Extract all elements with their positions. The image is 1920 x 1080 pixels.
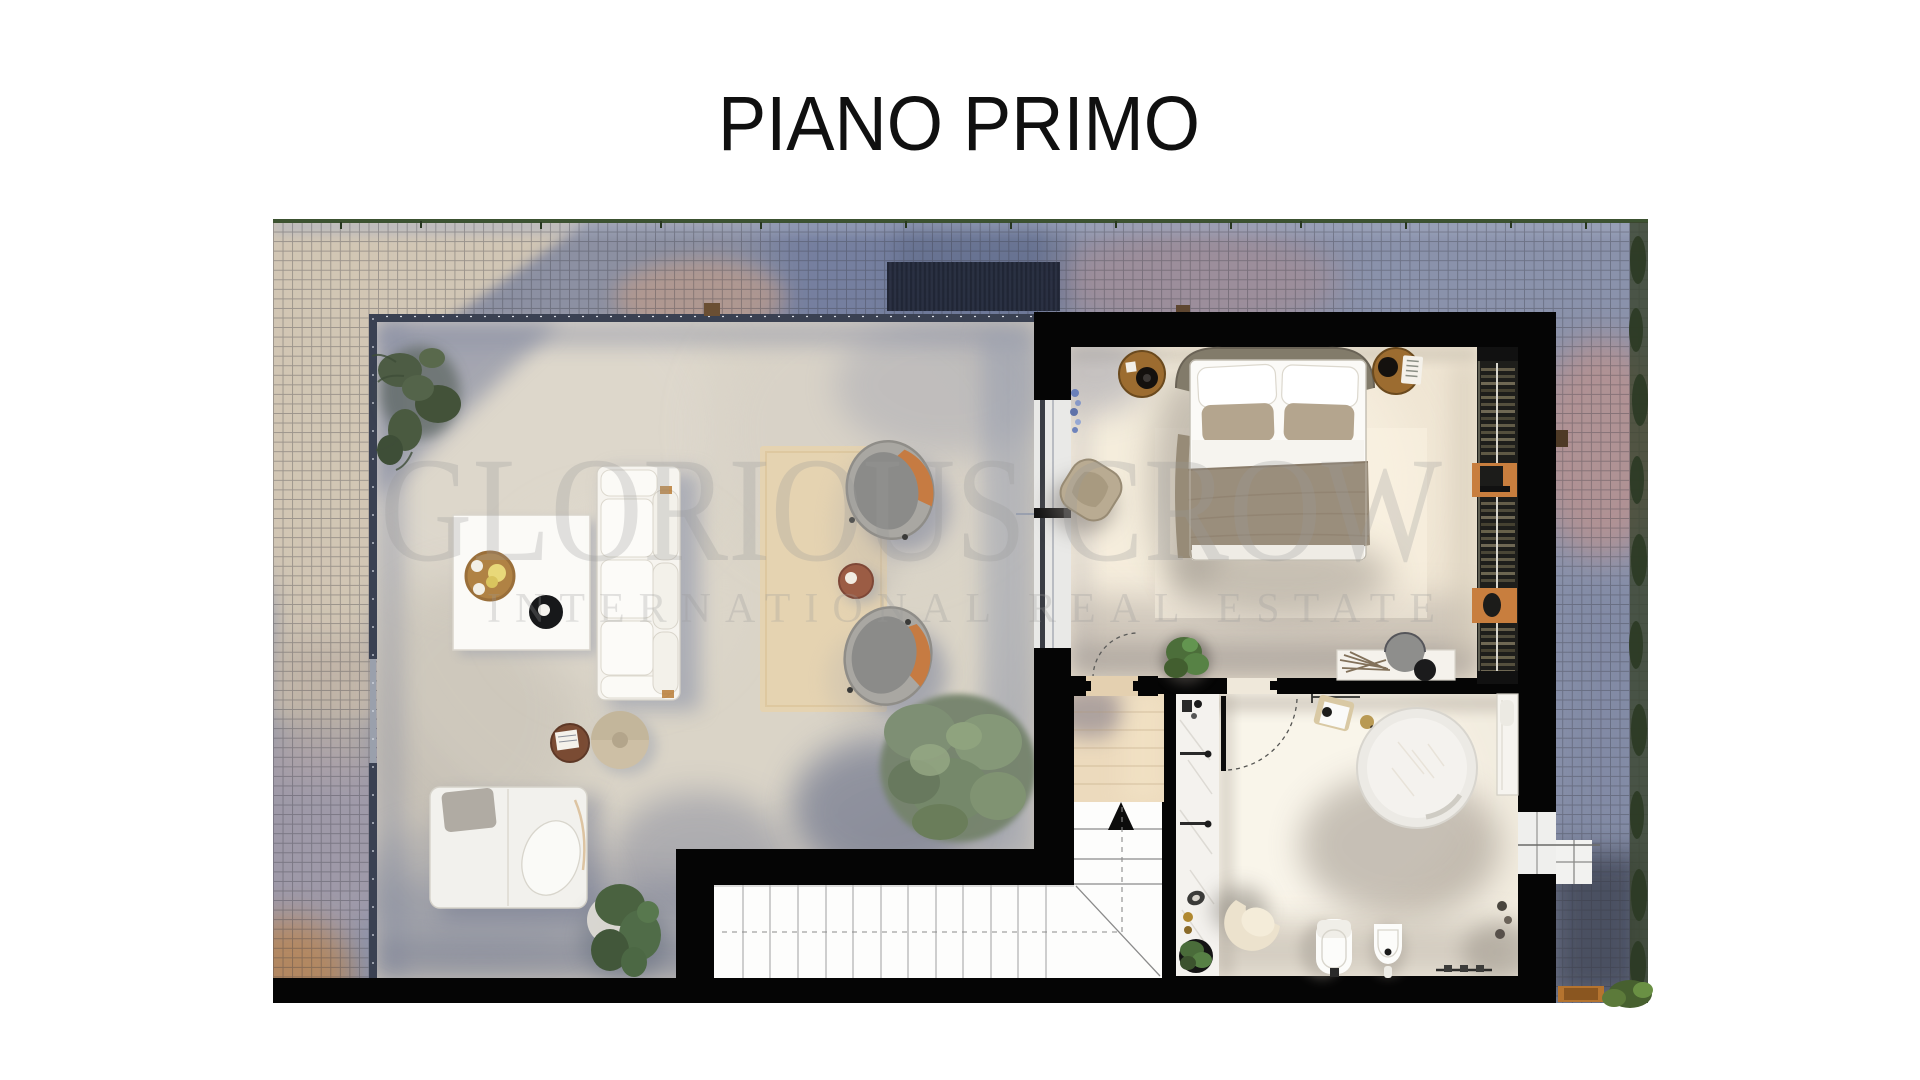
svg-text:PIANO PRIMO: PIANO PRIMO	[718, 81, 1200, 167]
svg-text:GLORIOUS CROW: GLORIOUS CROW	[380, 427, 1442, 593]
svg-text:INTERNATIONAL REAL ESTATE: INTERNATIONAL REAL ESTATE	[487, 586, 1449, 632]
